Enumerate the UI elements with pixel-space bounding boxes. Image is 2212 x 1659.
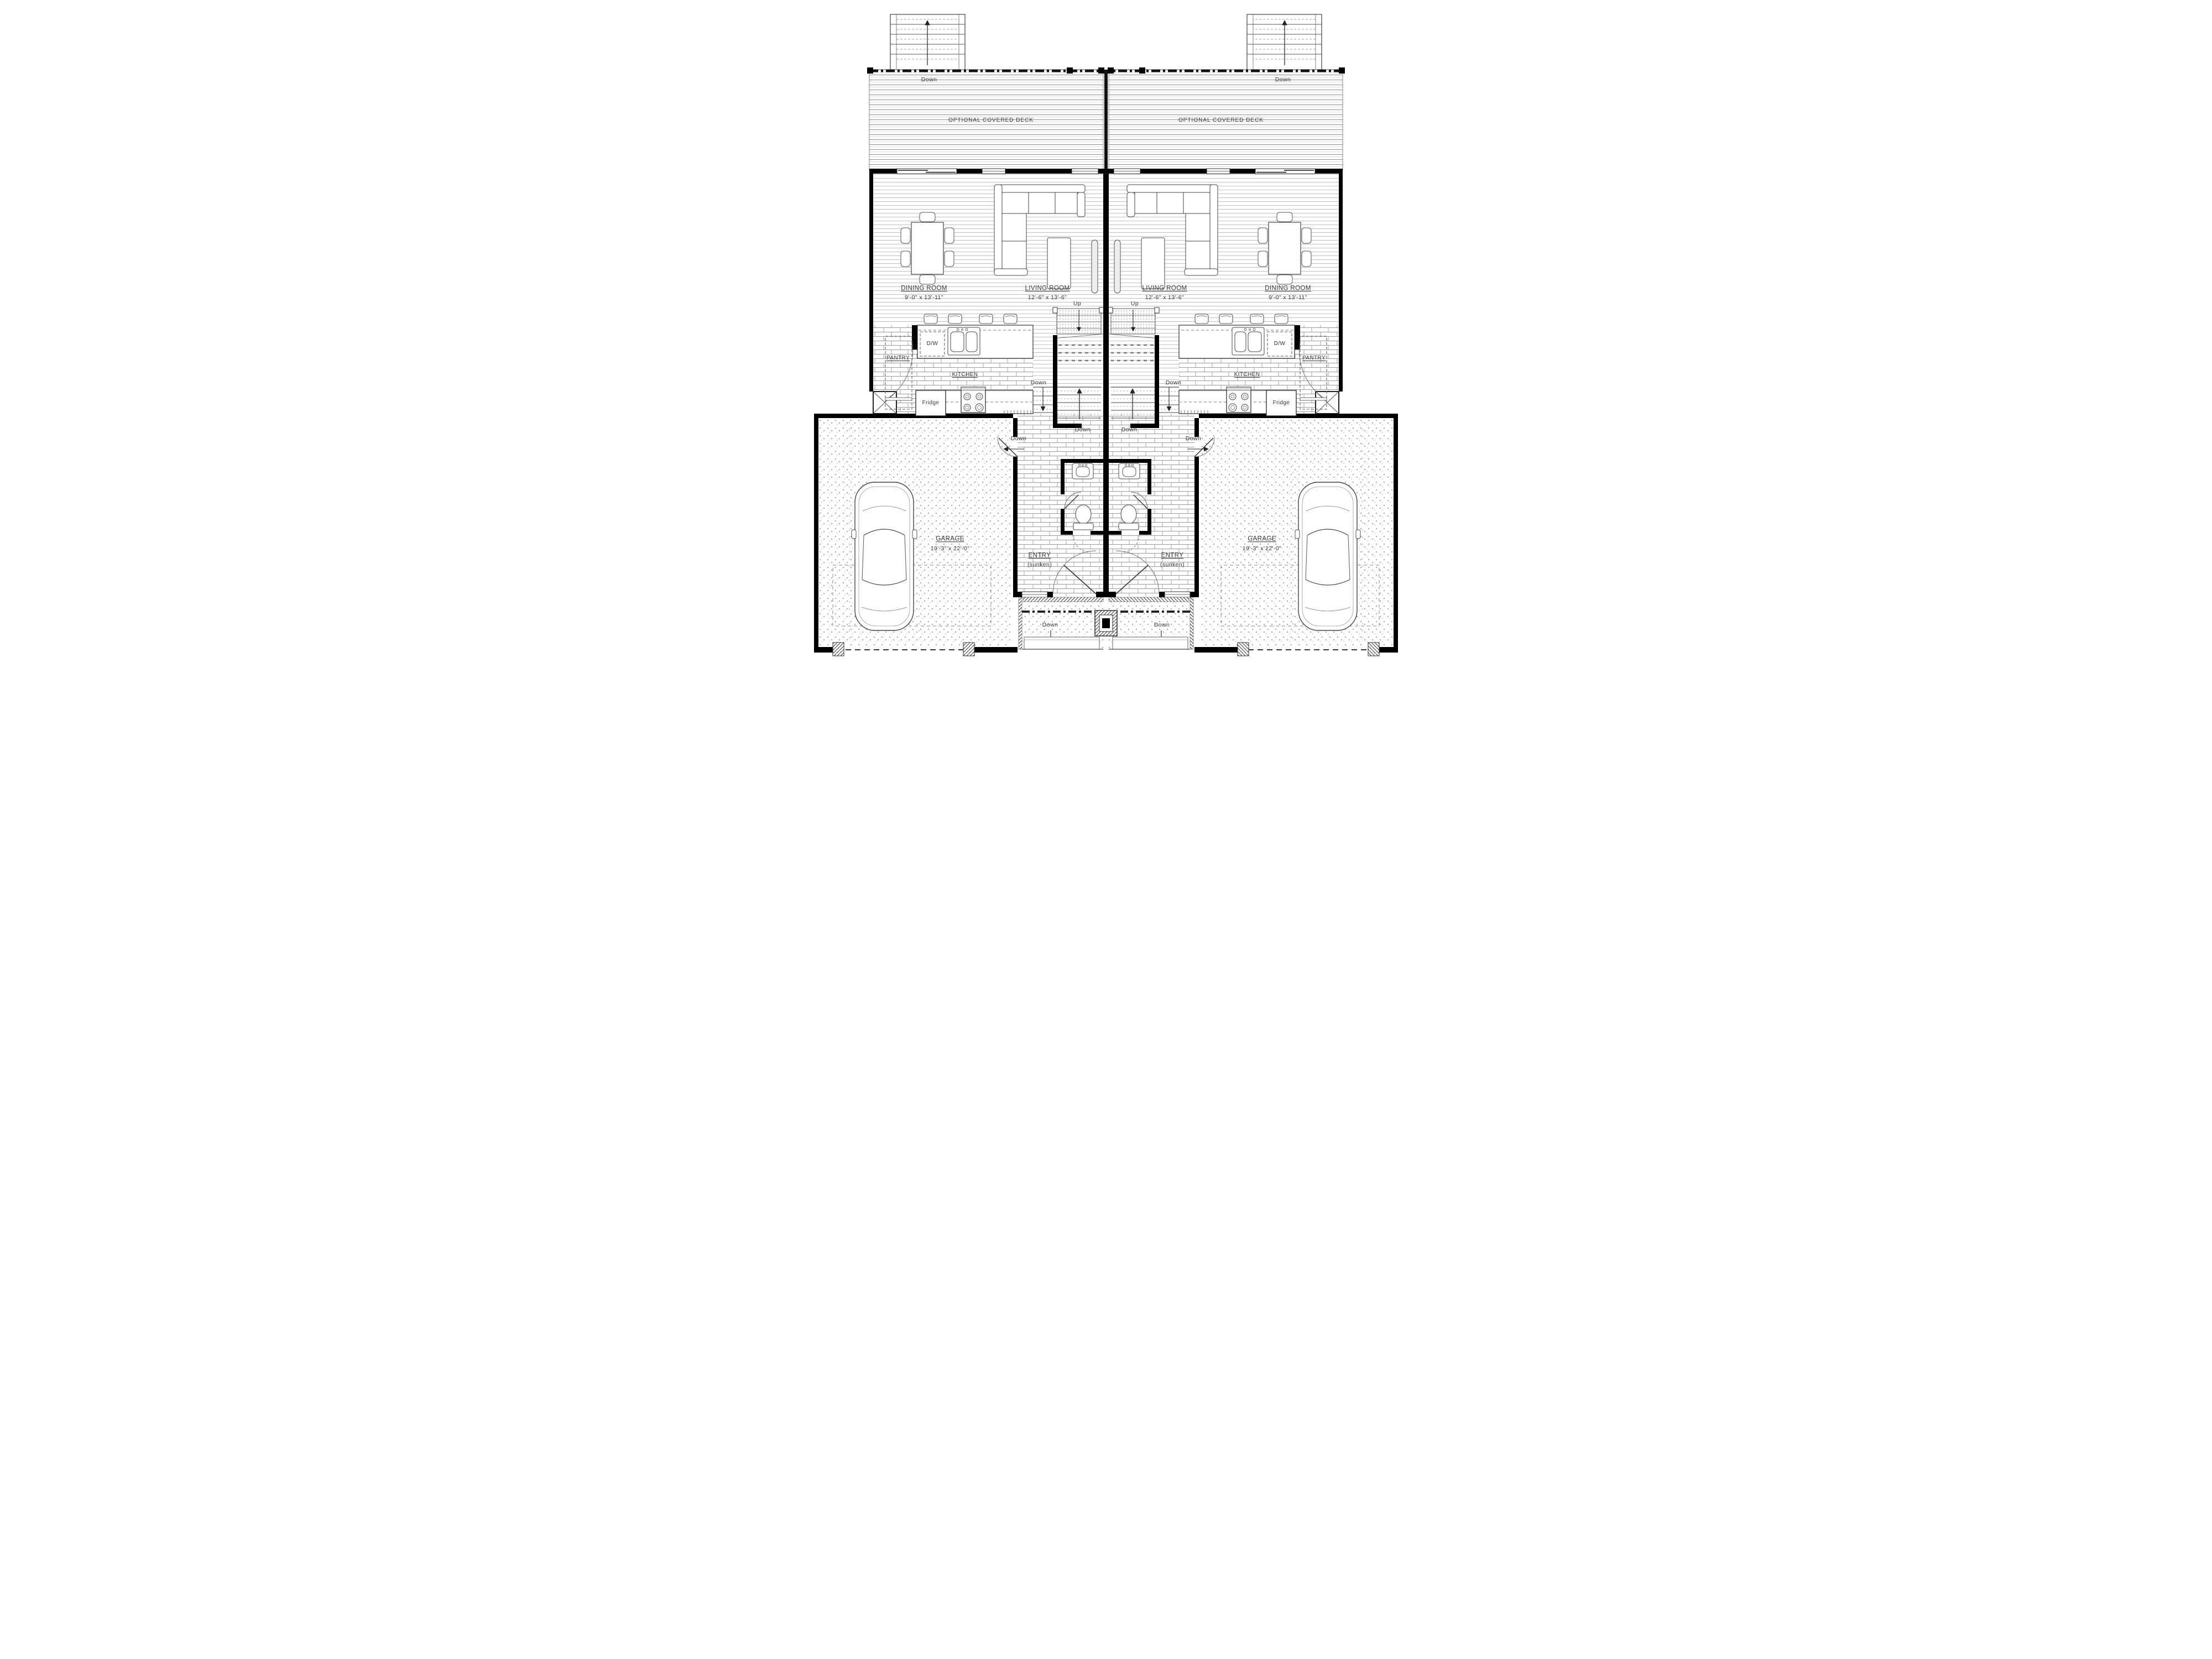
- room-label-garage-right: GARAGE: [1248, 536, 1276, 542]
- porch-down-label-left: Down: [1042, 622, 1058, 628]
- fridge-label-left: Fridge: [922, 400, 940, 406]
- deck-divider-wall: [1104, 70, 1108, 170]
- room-dim-garage-right: 19'-3" x 22'-0": [1243, 546, 1282, 552]
- deck-label-left: OPTIONAL COVERED DECK: [948, 118, 1034, 123]
- unit-graphics-right: [1108, 14, 1398, 656]
- room-sub-entry-right: (sunken): [1160, 562, 1185, 568]
- deck-label-right: OPTIONAL COVERED DECK: [1178, 118, 1264, 123]
- room-dim-living-left: 12'-6" x 13'-6": [1028, 295, 1067, 301]
- room-label-entry-right: ENTRY: [1161, 552, 1184, 559]
- room-dim-garage-left: 19'-3" x 22'-0": [931, 546, 970, 552]
- room-dim-dining-left: 9'-0" x 13'-11": [905, 295, 943, 301]
- room-label-entry-left: ENTRY: [1029, 552, 1051, 559]
- unit-graphics-left: [814, 14, 1104, 656]
- stair-up-label-left: Up: [1073, 301, 1081, 307]
- fridge-label-right: Fridge: [1273, 400, 1290, 406]
- dishwasher-label-right: D/W: [1274, 341, 1286, 347]
- kitchen-label-left: KITCHEN: [952, 372, 978, 378]
- room-label-dining-right: DINING ROOM: [1265, 285, 1311, 292]
- floor-plan-drawing: [664, 0, 1548, 664]
- room-dim-dining-right: 9'-0" x 13'-11": [1269, 295, 1307, 301]
- dishwasher-label-left: D/W: [927, 341, 938, 347]
- pantry-label-right: PANTRY: [1302, 356, 1326, 361]
- deck-down-label-right: Down: [1275, 77, 1291, 83]
- porch-column: [1095, 611, 1117, 636]
- party-wall: [1103, 169, 1109, 597]
- porch-down-label-right: Down: [1154, 622, 1170, 628]
- room-label-dining-left: DINING ROOM: [901, 285, 947, 292]
- floor-plan-page: Down OPTIONAL COVERED DECK DINING ROOM 9…: [664, 0, 1548, 664]
- stair-up-label-right: Up: [1131, 301, 1139, 307]
- deck-down-label-left: Down: [921, 77, 937, 83]
- steps-down-label-right: Down: [1166, 380, 1181, 386]
- garage-door-down-label-left: Down: [1011, 436, 1026, 442]
- room-label-living-left: LIVING ROOM: [1025, 285, 1070, 292]
- stair-down-label-right: Down: [1121, 427, 1137, 433]
- room-dim-living-right: 12'-6" x 13'-6": [1145, 295, 1185, 301]
- stair-down-label-left: Down: [1075, 427, 1091, 433]
- garage-door-down-label-right: Down: [1186, 436, 1201, 442]
- room-label-living-right: LIVING ROOM: [1142, 285, 1187, 292]
- room-sub-entry-left: (sunken): [1027, 562, 1052, 568]
- pantry-label-left: PANTRY: [886, 356, 910, 361]
- kitchen-label-right: KITCHEN: [1234, 372, 1260, 378]
- steps-down-label-left: Down: [1031, 380, 1046, 386]
- room-label-garage-left: GARAGE: [936, 536, 964, 542]
